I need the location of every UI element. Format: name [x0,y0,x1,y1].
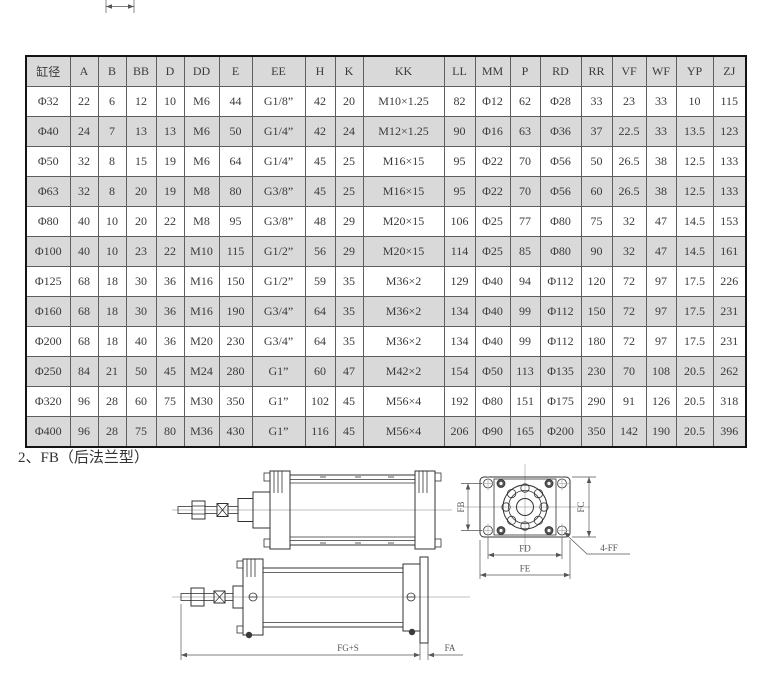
table-cell: 59 [305,267,335,297]
table-row: Φ322261210M644G1/8”4220M10×1.2582Φ1262Φ2… [26,87,746,117]
table-cell: 134 [444,327,475,357]
table-row: Φ12568183036M16150G1/2”5935M36×2129Φ4094… [26,267,746,297]
table-row: Φ40096287580M36430G1”11645M56×4206Φ90165… [26,417,746,448]
table-cell: 13.5 [676,117,713,147]
table-cell: 134 [444,297,475,327]
table-cell: 161 [713,237,746,267]
table-cell: M36×2 [363,267,444,297]
table-cell: 40 [70,207,98,237]
table-cell: 37 [581,117,612,147]
table-cell: M56×4 [363,417,444,448]
column-header: EE [252,56,305,87]
table-row: Φ10040102322M10115G1/2”5629M20×15114Φ258… [26,237,746,267]
table-cell: 45 [305,147,335,177]
table-cell: 26.5 [612,147,646,177]
header-row: 缸径ABBBDDDEEEHKKKLLMMPRDRRVFWFYPZJ [26,56,746,87]
table-cell: 25 [335,177,363,207]
table-cell: Φ32 [26,87,70,117]
table-cell: 19 [156,147,184,177]
column-header: LL [444,56,475,87]
section-title: 2、FB（后法兰型） [18,446,149,467]
column-header: DD [184,56,219,87]
table-cell: 99 [510,327,540,357]
table-cell: M6 [184,87,219,117]
table-cell: M30 [184,387,219,417]
table-cell: 68 [70,327,98,357]
table-cell: 231 [713,327,746,357]
table-cell: 50 [581,147,612,177]
table-cell: 17.5 [676,327,713,357]
table-cell: 350 [581,417,612,448]
column-header: RD [540,56,581,87]
table-cell: M8 [184,207,219,237]
table-cell: G1/8” [252,87,305,117]
table-cell: M56×4 [363,387,444,417]
table-cell: 25 [335,147,363,177]
table-cell: 85 [510,237,540,267]
dim-label-fg-s: FG+S [337,643,359,653]
table-cell: 29 [335,237,363,267]
table-cell: 75 [156,387,184,417]
table-cell: G3/4” [252,297,305,327]
table-cell: 30 [126,267,156,297]
table-cell: 70 [510,177,540,207]
table-cell: 230 [581,357,612,387]
table-cell: 190 [646,417,676,448]
table-cell: 50 [219,117,252,147]
table-cell: G1” [252,387,305,417]
dim-label-4-ff: 4-FF [600,543,618,553]
table-cell: 64 [305,327,335,357]
table-cell: Φ400 [26,417,70,448]
table-cell: 126 [646,387,676,417]
table-cell: 97 [646,297,676,327]
table-cell: 84 [70,357,98,387]
table-cell: 23 [126,237,156,267]
column-header: P [510,56,540,87]
table-cell: 48 [305,207,335,237]
table-cell: 8 [98,177,126,207]
table-cell: 56 [305,237,335,267]
table-cell: 95 [444,177,475,207]
table-cell: 60 [305,357,335,387]
table-cell: 64 [219,147,252,177]
table-cell: 32 [612,207,646,237]
table-cell: 44 [219,87,252,117]
table-cell: 12.5 [676,147,713,177]
table-cell: 133 [713,147,746,177]
column-header: KK [363,56,444,87]
table-cell: 12.5 [676,177,713,207]
table-cell: 165 [510,417,540,448]
table-cell: 33 [646,117,676,147]
table-cell: Φ40 [475,297,510,327]
table-cell: 35 [335,267,363,297]
table-cell: 47 [646,207,676,237]
table-cell: 38 [646,177,676,207]
table-cell: M16 [184,297,219,327]
table-cell: Φ112 [540,327,581,357]
table-cell: 22 [156,237,184,267]
table-cell: 90 [444,117,475,147]
table-cell: 18 [98,297,126,327]
table-cell: 63 [510,117,540,147]
table-cell: 45 [335,417,363,448]
table-cell: Φ50 [26,147,70,177]
table-cell: 96 [70,417,98,448]
table-cell: 72 [612,267,646,297]
table-cell: Φ63 [26,177,70,207]
table-cell: 28 [98,417,126,448]
table-cell: 115 [713,87,746,117]
table-cell: 60 [581,177,612,207]
dim-label-fe: FE [520,564,531,574]
table-cell: Φ80 [26,207,70,237]
table-cell: G3/8” [252,207,305,237]
table-cell: 18 [98,267,126,297]
table-cell: 226 [713,267,746,297]
table-cell: 80 [156,417,184,448]
table-row: Φ402471313M650G1/4”4224M12×1.2590Φ1663Φ3… [26,117,746,147]
table-cell: 17.5 [676,297,713,327]
table-cell: 36 [156,297,184,327]
table-cell: 77 [510,207,540,237]
table-cell: Φ12 [475,87,510,117]
table-cell: 30 [126,297,156,327]
table-cell: Φ25 [475,237,510,267]
table-cell: M8 [184,177,219,207]
table-cell: G1” [252,357,305,387]
table-cell: 29 [335,207,363,237]
table-cell: 47 [646,237,676,267]
table-cell: 17.5 [676,267,713,297]
column-header: A [70,56,98,87]
cylinder-side-view-top [172,471,452,549]
table-cell: Φ100 [26,237,70,267]
table-cell: 45 [156,357,184,387]
table-cell: G3/8” [252,177,305,207]
table-cell: 20.5 [676,357,713,387]
table-cell: 8 [98,147,126,177]
table-cell: M6 [184,117,219,147]
table-cell: 113 [510,357,540,387]
table-row: Φ8040102022M895G3/8”4829M20×15106Φ2577Φ8… [26,207,746,237]
table-cell: 99 [510,297,540,327]
cylinder-side-view-flange: FG+S FA [172,557,470,660]
table-cell: 33 [646,87,676,117]
table-cell: M10×1.25 [363,87,444,117]
table-cell: Φ25 [475,207,510,237]
table-cell: Φ40 [26,117,70,147]
table-cell: 32 [70,147,98,177]
table-cell: 6 [98,87,126,117]
dim-label-fa: FA [445,643,456,653]
table-cell: 47 [335,357,363,387]
column-header: ZJ [713,56,746,87]
table-cell: 22 [156,207,184,237]
column-header: H [305,56,335,87]
cutoff-dimension-mark [103,0,139,14]
table-cell: 23 [612,87,646,117]
table-cell: M16×15 [363,147,444,177]
table-cell: 32 [612,237,646,267]
table-cell: 33 [581,87,612,117]
table-cell: 350 [219,387,252,417]
dim-label-fc: FC [576,501,586,512]
table-row: Φ32096286075M30350G1”10245M56×4192Φ80151… [26,387,746,417]
table-cell: G3/4” [252,327,305,357]
column-header: VF [612,56,646,87]
table-cell: 116 [305,417,335,448]
table-cell: 20 [126,177,156,207]
table-cell: 22 [70,87,98,117]
column-header: YP [676,56,713,87]
table-cell: Φ22 [475,177,510,207]
table-cell: 120 [581,267,612,297]
table-cell: M24 [184,357,219,387]
dim-label-fb: FB [456,501,466,512]
table-cell: M36 [184,417,219,448]
table-cell: Φ320 [26,387,70,417]
table-cell: Φ80 [475,387,510,417]
table-cell: 20.5 [676,387,713,417]
column-header: K [335,56,363,87]
table-cell: 10 [156,87,184,117]
table-cell: 90 [581,237,612,267]
table-cell: 45 [305,177,335,207]
table-cell: 82 [444,87,475,117]
table-cell: Φ28 [540,87,581,117]
table-cell: 68 [70,267,98,297]
table-cell: 68 [70,297,98,327]
table-cell: 262 [713,357,746,387]
table-cell: 62 [510,87,540,117]
table-cell: 22.5 [612,117,646,147]
table-cell: 26.5 [612,177,646,207]
column-header: MM [475,56,510,87]
flange-front-view: FB FC FD FE 4-FF [456,464,630,579]
table-cell: 115 [219,237,252,267]
table-cell: 129 [444,267,475,297]
technical-drawings: FG+S FA [170,462,758,686]
table-cell: 7 [98,117,126,147]
document-page: 缸径ABBBDDDEEEHKKKLLMMPRDRRVFWFYPZJ Φ32226… [0,0,758,686]
table-cell: 50 [126,357,156,387]
dimension-table: 缸径ABBBDDDEEEHKKKLLMMPRDRRVFWFYPZJ Φ32226… [25,55,747,448]
table-cell: 154 [444,357,475,387]
table-cell: 142 [612,417,646,448]
table-cell: M16 [184,267,219,297]
table-cell: 95 [219,207,252,237]
table-cell: M20×15 [363,207,444,237]
column-header: D [156,56,184,87]
table-cell: 42 [305,87,335,117]
table-cell: 20 [335,87,363,117]
table-cell: 290 [581,387,612,417]
table-cell: 24 [70,117,98,147]
table-cell: M6 [184,147,219,177]
table-cell: Φ16 [475,117,510,147]
table-cell: 280 [219,357,252,387]
table-cell: 32 [70,177,98,207]
table-cell: Φ175 [540,387,581,417]
table-row: Φ20068184036M20230G3/4”6435M36×2134Φ4099… [26,327,746,357]
table-cell: 123 [713,117,746,147]
table-cell: Φ80 [540,207,581,237]
table-cell: 75 [126,417,156,448]
table-cell: Φ135 [540,357,581,387]
table-cell: 396 [713,417,746,448]
table-cell: 28 [98,387,126,417]
column-header: B [98,56,126,87]
table-row: Φ503281519M664G1/4”4525M16×1595Φ2270Φ565… [26,147,746,177]
table-row: Φ25084215045M24280G1”6047M42×2154Φ50113Φ… [26,357,746,387]
table-cell: 206 [444,417,475,448]
table-cell: G1/2” [252,267,305,297]
table-cell: Φ200 [26,327,70,357]
table-cell: Φ125 [26,267,70,297]
table-cell: 36 [156,267,184,297]
table-cell: M20 [184,327,219,357]
table-cell: 102 [305,387,335,417]
table-cell: 45 [335,387,363,417]
table-cell: Φ22 [475,147,510,177]
table-cell: 80 [219,177,252,207]
table-cell: 20.5 [676,417,713,448]
table-cell: 21 [98,357,126,387]
table-cell: M36×2 [363,327,444,357]
table-cell: 150 [581,297,612,327]
table-cell: 38 [646,147,676,177]
table-cell: 64 [305,297,335,327]
table-cell: 70 [612,357,646,387]
table-cell: Φ160 [26,297,70,327]
table-cell: 40 [126,327,156,357]
table-cell: 35 [335,327,363,357]
table-cell: 35 [335,297,363,327]
table-cell: 42 [305,117,335,147]
table-cell: 14.5 [676,237,713,267]
table-cell: Φ56 [540,177,581,207]
table-cell: 133 [713,177,746,207]
dim-label-fd: FD [519,544,531,554]
table-cell: G1/4” [252,117,305,147]
table-cell: 230 [219,327,252,357]
table-cell: Φ200 [540,417,581,448]
table-cell: Φ80 [540,237,581,267]
table-cell: 97 [646,327,676,357]
table-cell: 106 [444,207,475,237]
table-cell: M20×15 [363,237,444,267]
table-cell: 13 [156,117,184,147]
table-cell: 190 [219,297,252,327]
table-cell: 94 [510,267,540,297]
table-row: Φ16068183036M16190G3/4”6435M36×2134Φ4099… [26,297,746,327]
table-cell: 430 [219,417,252,448]
table-cell: 36 [156,327,184,357]
table-cell: 60 [126,387,156,417]
table-cell: Φ40 [475,267,510,297]
table-cell: 96 [70,387,98,417]
table-row: Φ633282019M880G3/8”4525M16×1595Φ2270Φ566… [26,177,746,207]
table-cell: 15 [126,147,156,177]
table-cell: Φ112 [540,297,581,327]
table-cell: 40 [70,237,98,267]
table-cell: 91 [612,387,646,417]
column-header: 缸径 [26,56,70,87]
table-cell: 150 [219,267,252,297]
table-cell: Φ50 [475,357,510,387]
table-cell: 72 [612,297,646,327]
table-cell: 10 [98,237,126,267]
column-header: E [219,56,252,87]
table-cell: G1/2” [252,237,305,267]
table-cell: M10 [184,237,219,267]
table-cell: G1” [252,417,305,448]
table-cell: M12×1.25 [363,117,444,147]
table-cell: Φ250 [26,357,70,387]
table-cell: 153 [713,207,746,237]
table-cell: 19 [156,177,184,207]
table-cell: 14.5 [676,207,713,237]
table-cell: 95 [444,147,475,177]
column-header: WF [646,56,676,87]
table-cell: 20 [126,207,156,237]
table-cell: 180 [581,327,612,357]
table-cell: 151 [510,387,540,417]
table-cell: G1/4” [252,147,305,177]
table-cell: 108 [646,357,676,387]
table-cell: Φ36 [540,117,581,147]
table-cell: 12 [126,87,156,117]
table-cell: M16×15 [363,177,444,207]
table-cell: Φ56 [540,147,581,177]
table-cell: M36×2 [363,297,444,327]
table-cell: 10 [676,87,713,117]
table-cell: 18 [98,327,126,357]
table-cell: 114 [444,237,475,267]
column-header: BB [126,56,156,87]
table-cell: 231 [713,297,746,327]
table-cell: 192 [444,387,475,417]
table-cell: Φ90 [475,417,510,448]
table-cell: 13 [126,117,156,147]
table-cell: M42×2 [363,357,444,387]
table-cell: 318 [713,387,746,417]
table-cell: 72 [612,327,646,357]
table-cell: 75 [581,207,612,237]
table-cell: Φ40 [475,327,510,357]
table-cell: 24 [335,117,363,147]
table-cell: 10 [98,207,126,237]
table-cell: Φ112 [540,267,581,297]
table-cell: 70 [510,147,540,177]
column-header: RR [581,56,612,87]
table-cell: 97 [646,267,676,297]
